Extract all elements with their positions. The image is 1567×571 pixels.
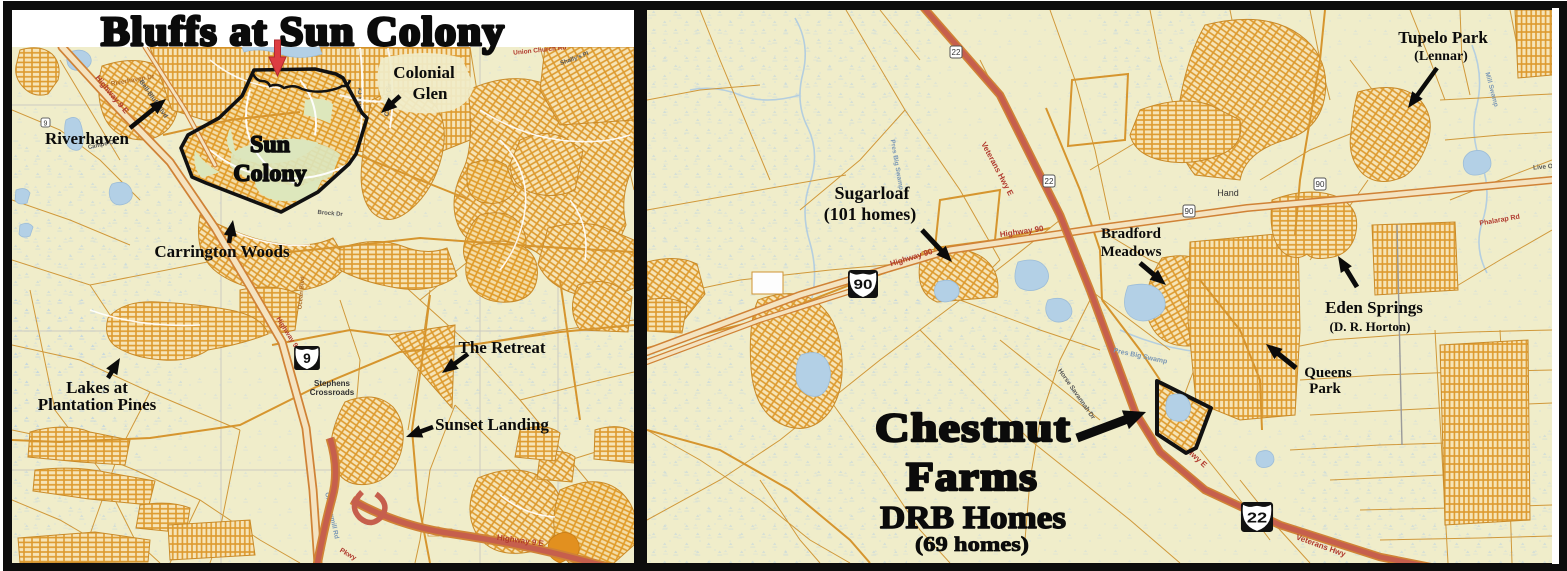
svg-text:Crossroads: Crossroads bbox=[310, 388, 355, 397]
svg-text:Sugarloaf: Sugarloaf bbox=[834, 183, 910, 203]
svg-text:(D. R. Horton): (D. R. Horton) bbox=[1330, 319, 1411, 334]
svg-text:90: 90 bbox=[854, 276, 873, 292]
svg-text:Hand: Hand bbox=[1217, 188, 1239, 198]
svg-text:Farms: Farms bbox=[906, 454, 1038, 499]
svg-text:Park: Park bbox=[1309, 381, 1341, 397]
svg-text:90: 90 bbox=[1185, 207, 1194, 216]
svg-text:Stephens: Stephens bbox=[314, 379, 351, 388]
svg-text:The Retreat: The Retreat bbox=[458, 338, 545, 357]
svg-text:(69 homes): (69 homes) bbox=[915, 532, 1029, 556]
svg-text:Sun: Sun bbox=[250, 132, 290, 158]
svg-text:Plantation Pines: Plantation Pines bbox=[38, 395, 157, 414]
svg-text:Glen: Glen bbox=[413, 84, 448, 103]
svg-text:(101 homes): (101 homes) bbox=[824, 204, 917, 225]
svg-text:9: 9 bbox=[44, 121, 48, 128]
svg-text:DRB Homes: DRB Homes bbox=[880, 499, 1066, 535]
svg-text:90: 90 bbox=[1316, 180, 1325, 189]
svg-text:Tupelo Park: Tupelo Park bbox=[1398, 28, 1488, 47]
svg-text:22: 22 bbox=[1247, 509, 1267, 526]
svg-text:Sunset Landing: Sunset Landing bbox=[435, 415, 549, 434]
svg-text:22: 22 bbox=[1045, 177, 1054, 186]
svg-text:Meadows: Meadows bbox=[1101, 244, 1162, 260]
svg-text:Riverhaven: Riverhaven bbox=[45, 129, 130, 148]
svg-text:Chestnut: Chestnut bbox=[875, 405, 1071, 450]
svg-text:22: 22 bbox=[952, 48, 961, 57]
svg-text:Colony: Colony bbox=[233, 161, 306, 187]
svg-text:Carrington Woods: Carrington Woods bbox=[154, 242, 290, 261]
svg-text:Queens: Queens bbox=[1304, 365, 1352, 381]
svg-text:Bradford: Bradford bbox=[1101, 226, 1162, 242]
svg-text:9: 9 bbox=[303, 351, 311, 366]
svg-text:Bluffs at Sun Colony: Bluffs at Sun Colony bbox=[101, 8, 505, 54]
svg-text:(Lennar): (Lennar) bbox=[1414, 49, 1468, 64]
svg-text:Eden Springs: Eden Springs bbox=[1325, 298, 1423, 317]
svg-text:Colonial: Colonial bbox=[393, 63, 455, 82]
